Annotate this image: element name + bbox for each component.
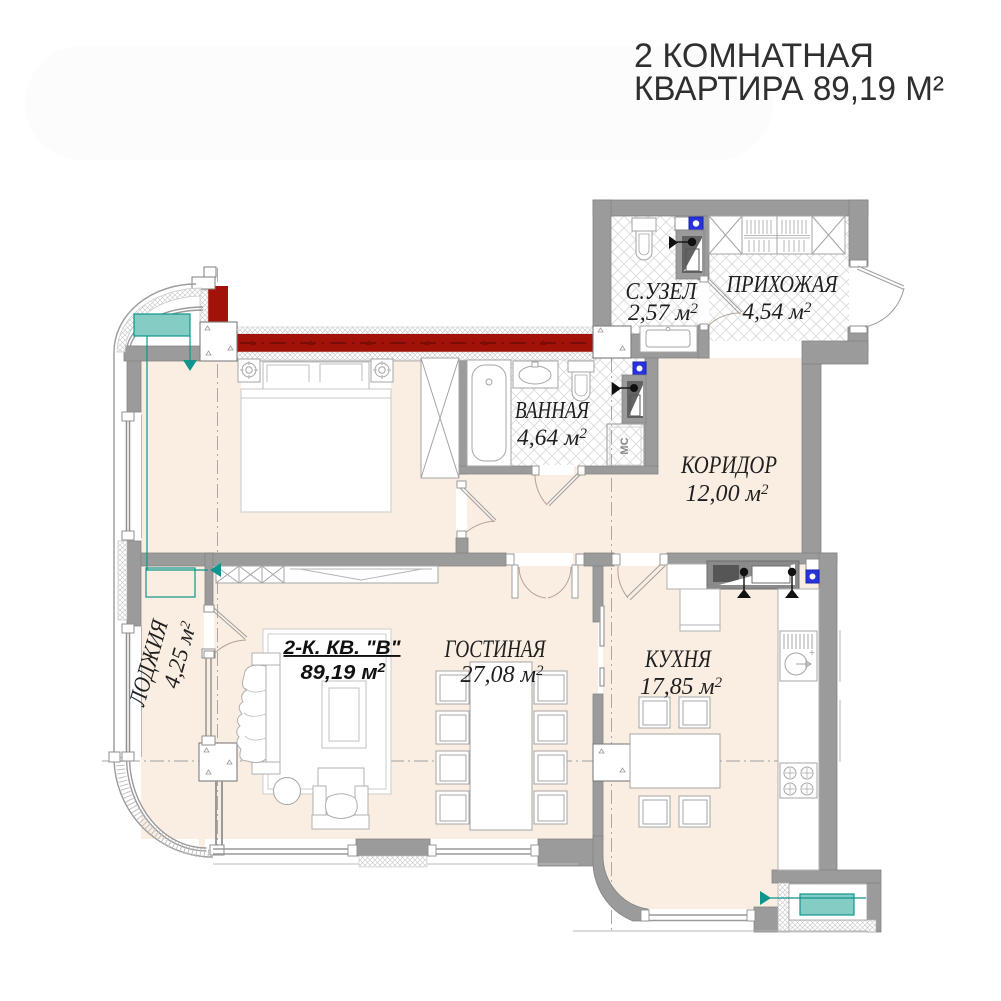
svg-text:89,19 м2: 89,19 м2 [301, 660, 387, 684]
svg-text:12,00 м2: 12,00 м2 [686, 481, 770, 507]
svg-text:2,57 м2: 2,57 м2 [628, 300, 699, 325]
svg-text:КОРИДОР: КОРИДОР [680, 452, 777, 479]
svg-text:МС: МС [619, 437, 631, 454]
svg-text:27,08 м2: 27,08 м2 [461, 662, 545, 688]
svg-text:КУХНЯ: КУХНЯ [644, 646, 712, 673]
svg-text:ГОСТИНАЯ: ГОСТИНАЯ [444, 636, 547, 663]
svg-text:ВАННАЯ: ВАННАЯ [515, 398, 590, 424]
svg-text:ПРИХОЖАЯ: ПРИХОЖАЯ [726, 272, 839, 298]
svg-text:КВАРТИРА 89,19 М²: КВАРТИРА 89,19 М² [634, 70, 944, 108]
svg-text:4,54 м2: 4,54 м2 [743, 299, 813, 324]
svg-text:17,85 м2: 17,85 м2 [640, 674, 722, 700]
svg-text:4,64 м2: 4,64 м2 [517, 425, 588, 450]
svg-text:2-К. КВ. "В": 2-К. КВ. "В" [282, 638, 401, 659]
